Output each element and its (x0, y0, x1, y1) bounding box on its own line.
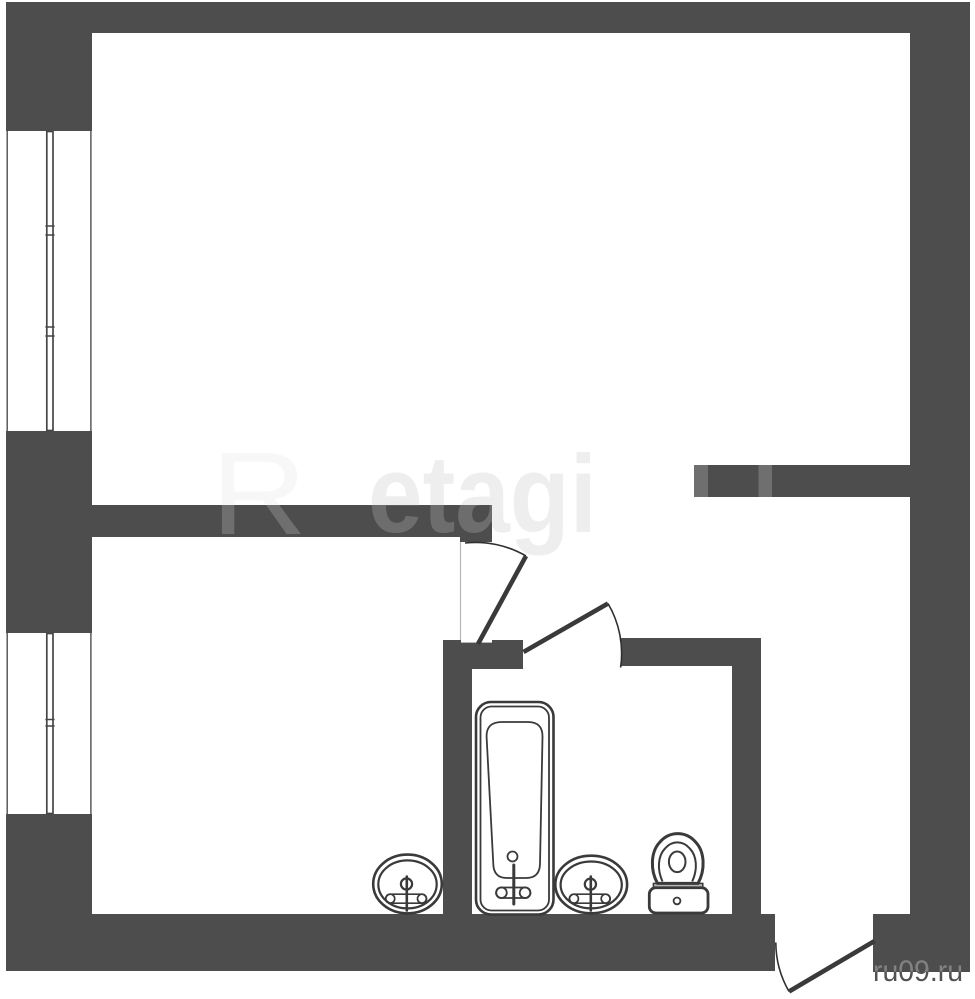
svg-text:etagi: etagi (368, 433, 597, 556)
svg-text:R: R (211, 428, 307, 560)
